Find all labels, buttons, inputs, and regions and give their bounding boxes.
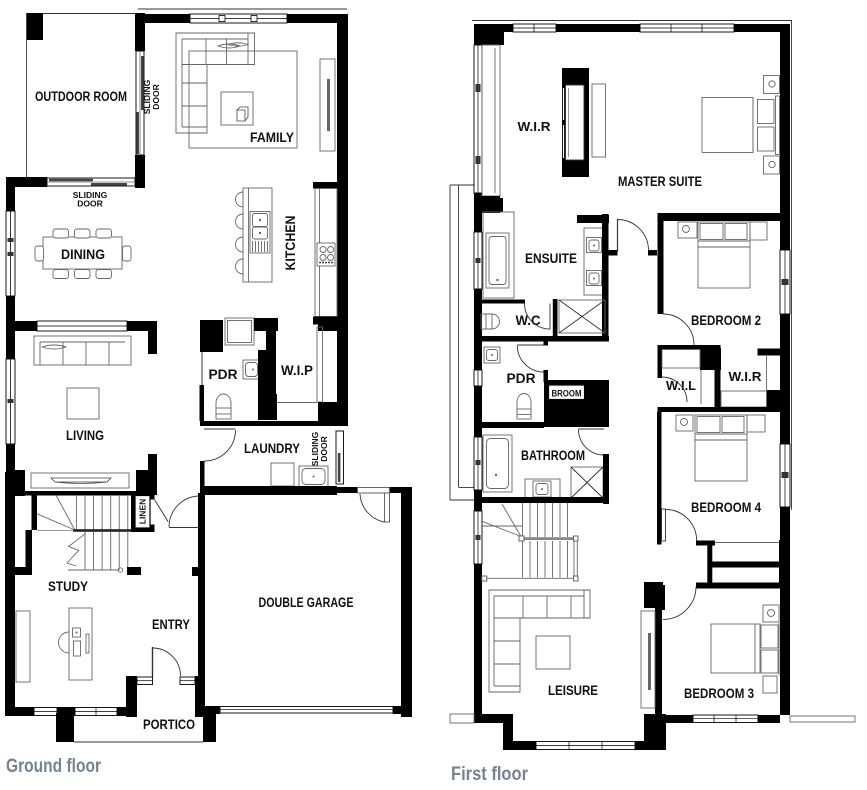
- svg-text:MASTER SUITE: MASTER SUITE: [618, 174, 702, 189]
- svg-text:DOUBLE GARAGE: DOUBLE GARAGE: [259, 595, 354, 610]
- svg-text:PDR: PDR: [507, 371, 536, 386]
- svg-text:LIVING: LIVING: [66, 428, 104, 443]
- svg-text:BEDROOM 2: BEDROOM 2: [691, 313, 761, 328]
- svg-text:FAMILY: FAMILY: [250, 130, 294, 145]
- svg-text:Ground floor: Ground floor: [6, 756, 101, 777]
- svg-text:PDR: PDR: [209, 367, 238, 382]
- svg-text:DINING: DINING: [61, 247, 105, 262]
- svg-text:ENTRY: ENTRY: [152, 617, 190, 632]
- svg-text:ENSUITE: ENSUITE: [525, 251, 577, 266]
- svg-text:LAUNDRY: LAUNDRY: [244, 441, 300, 456]
- svg-text:W.I.P: W.I.P: [281, 363, 313, 378]
- svg-text:LEISURE: LEISURE: [548, 683, 598, 698]
- svg-text:DOOR: DOOR: [77, 199, 103, 209]
- svg-text:BEDROOM 4: BEDROOM 4: [691, 500, 761, 515]
- svg-text:LINEN: LINEN: [138, 499, 148, 525]
- svg-text:W.I.R: W.I.R: [729, 370, 762, 384]
- svg-text:PORTICO: PORTICO: [143, 717, 195, 732]
- svg-text:BEDROOM 3: BEDROOM 3: [684, 686, 754, 701]
- svg-text:BROOM: BROOM: [552, 389, 582, 400]
- svg-text:KITCHEN: KITCHEN: [283, 216, 298, 271]
- svg-text:W.I.R: W.I.R: [518, 120, 551, 134]
- svg-text:STUDY: STUDY: [48, 579, 88, 594]
- svg-text:DOOR: DOOR: [151, 84, 161, 110]
- svg-text:DOOR: DOOR: [319, 436, 329, 462]
- svg-text:OUTDOOR ROOM: OUTDOOR ROOM: [35, 89, 127, 104]
- svg-text:First floor: First floor: [451, 764, 529, 785]
- svg-text:BATHROOM: BATHROOM: [521, 448, 585, 463]
